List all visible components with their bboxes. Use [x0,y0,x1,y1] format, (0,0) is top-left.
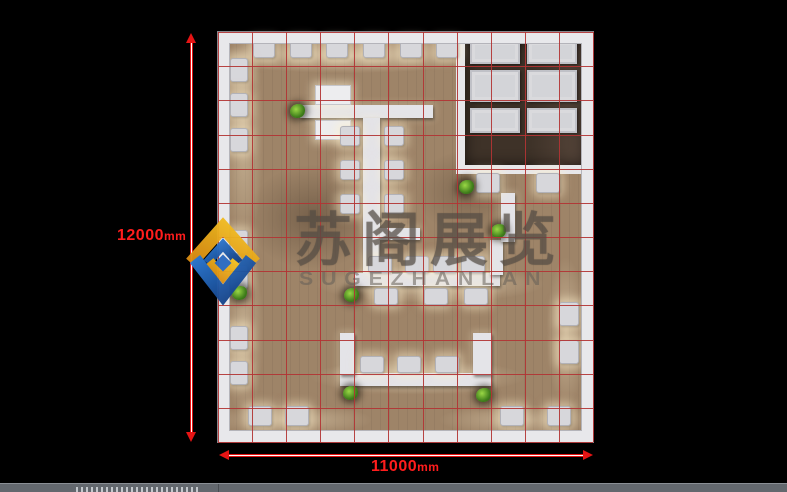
seat-block [559,302,579,326]
watermark-chinese-text: 苏阁展览 [294,212,580,270]
arrow-down-icon [186,432,196,442]
room-panel [527,108,577,133]
room-panel [470,40,520,64]
plant [459,180,474,194]
dimension-horizontal-unit: mm [417,460,439,474]
counter-block [300,105,433,118]
seat-block [547,406,571,426]
plant [476,388,491,402]
seat-block [436,40,458,58]
plant [343,386,358,400]
statusbar-clipped-text [76,487,198,492]
seat-block [230,58,248,82]
counter-block [340,373,492,386]
table-block [315,85,351,105]
room-panel [470,70,520,102]
arrow-right-icon [583,450,593,460]
watermark-latin-text: SUGEZHANLAN [299,269,548,291]
counter-block [473,333,492,375]
room-panel [470,108,520,133]
seat-block [285,406,309,426]
seat-block [230,361,248,385]
counter-block [340,333,355,375]
seat-block [248,406,272,426]
seat-block [397,356,421,373]
grid-line-vertical [593,32,594,442]
seat-block [536,173,560,193]
arrow-up-icon [186,33,196,43]
viewer-stage: 12000mm 11000mm 苏阁展览 SUGEZHANLAN [0,0,787,492]
seat-block [340,160,360,180]
seat-block [384,160,404,180]
arrow-left-icon [219,450,229,460]
seat-block [290,40,312,58]
grid-line-horizontal [218,442,593,443]
dimension-horizontal-label: 11000mm [371,458,439,476]
seat-block [500,406,524,426]
seat-block [435,356,459,373]
company-logo-icon [177,211,269,311]
seat-block [230,128,248,152]
dimension-horizontal-value: 11000 [371,458,417,475]
room-panel [527,40,577,64]
seat-block [476,173,500,193]
dimension-line-horizontal [229,454,583,457]
seat-block [340,126,360,146]
plant [290,104,305,118]
seat-block [559,340,579,364]
seat-block [384,126,404,146]
dimension-vertical-value: 12000 [117,227,164,244]
seat-block [400,40,422,58]
seat-block [326,40,348,58]
seat-block [230,326,248,350]
statusbar-divider [218,484,219,492]
seat-block [363,40,385,58]
seat-block [230,93,248,117]
seat-block [253,40,275,58]
statusbar [0,483,787,492]
seat-block [360,356,384,373]
dimension-vertical-label: 12000mm [117,227,186,245]
room-panel [527,70,577,102]
